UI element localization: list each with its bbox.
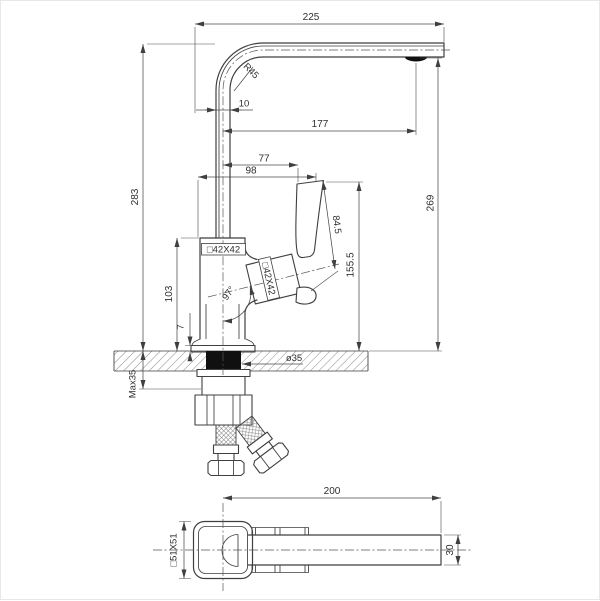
main-view: 225 R45 10 177 77 98 283 269 84.5 155.5 … bbox=[114, 12, 450, 476]
dim-total-height-label: 283 bbox=[130, 188, 141, 205]
dim-aerator-offset-label: 177 bbox=[312, 119, 329, 130]
under-deck-assembly bbox=[195, 370, 290, 476]
aerator bbox=[405, 57, 427, 62]
main-dimensions: 225 R45 10 177 77 98 283 269 84.5 155.5 … bbox=[128, 12, 445, 398]
handle-lever bbox=[296, 181, 324, 258]
dim-max-deck-label: Max35 bbox=[128, 370, 139, 399]
dim-handle-front-label: 77 bbox=[258, 154, 270, 165]
dim-handle-back-label: 98 bbox=[245, 166, 257, 177]
technical-drawing-page: 225 R45 10 177 77 98 283 269 84.5 155.5 … bbox=[0, 0, 600, 600]
washer bbox=[197, 370, 250, 377]
shank-cylinder bbox=[202, 377, 245, 396]
dim-spout-tube-label: 10 bbox=[239, 99, 250, 110]
faucet-technical-drawing: 225 R45 10 177 77 98 283 269 84.5 155.5 … bbox=[1, 1, 600, 601]
dim-handle-length-label: 84.5 bbox=[330, 215, 343, 235]
mounting-deck bbox=[114, 351, 368, 371]
deck-hatch-right bbox=[241, 351, 368, 371]
hose-hex-nut bbox=[208, 461, 244, 476]
body-section-label: □42X42 bbox=[207, 245, 240, 256]
dim-body-height-label: 103 bbox=[164, 285, 175, 302]
dim-spout-width-label: 30 bbox=[445, 544, 456, 556]
dim-handle-plan-section-label: □51X51 bbox=[169, 533, 180, 566]
dim-spout-length-label: 200 bbox=[324, 486, 341, 497]
handle-assembly bbox=[246, 181, 324, 305]
threaded-shank bbox=[206, 351, 241, 370]
extension-lines bbox=[139, 27, 444, 389]
deck-hatch-left bbox=[114, 351, 206, 371]
plan-extension-lines bbox=[179, 501, 461, 579]
dim-base-plate-label: 7 bbox=[176, 324, 187, 329]
supply-hose-straight bbox=[208, 425, 244, 476]
plan-handle-dome bbox=[222, 535, 238, 567]
dim-spout-reach-label: 225 bbox=[303, 12, 320, 23]
dim-handle-top-height-label: 155.5 bbox=[346, 252, 357, 277]
dim-spout-height-label: 269 bbox=[426, 194, 437, 211]
dim-hole-diameter-label: ø35 bbox=[286, 353, 302, 364]
plan-view: 200 □51X51 30 bbox=[153, 486, 471, 591]
lock-nut bbox=[195, 395, 252, 425]
